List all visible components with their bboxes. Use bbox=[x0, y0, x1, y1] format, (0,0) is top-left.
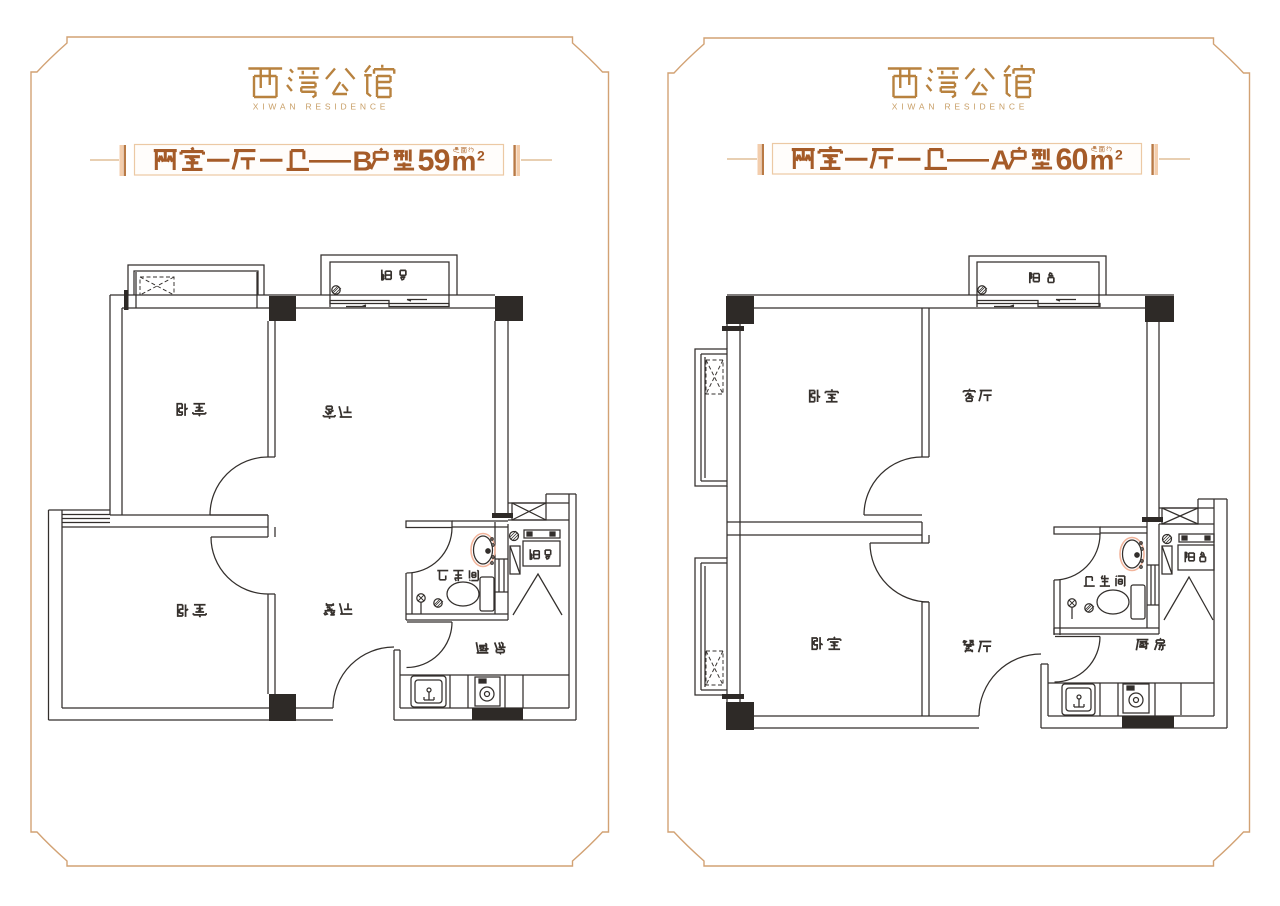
svg-text:2: 2 bbox=[477, 148, 485, 164]
svg-text:XIWAN RESIDENCE: XIWAN RESIDENCE bbox=[253, 102, 390, 112]
svg-text:2: 2 bbox=[1115, 147, 1123, 163]
svg-text:XIWAN RESIDENCE: XIWAN RESIDENCE bbox=[892, 102, 1029, 112]
svg-text:B: B bbox=[353, 146, 373, 177]
svg-text:59: 59 bbox=[418, 144, 451, 178]
svg-text:60: 60 bbox=[1056, 143, 1089, 177]
svg-text:A: A bbox=[991, 145, 1011, 176]
